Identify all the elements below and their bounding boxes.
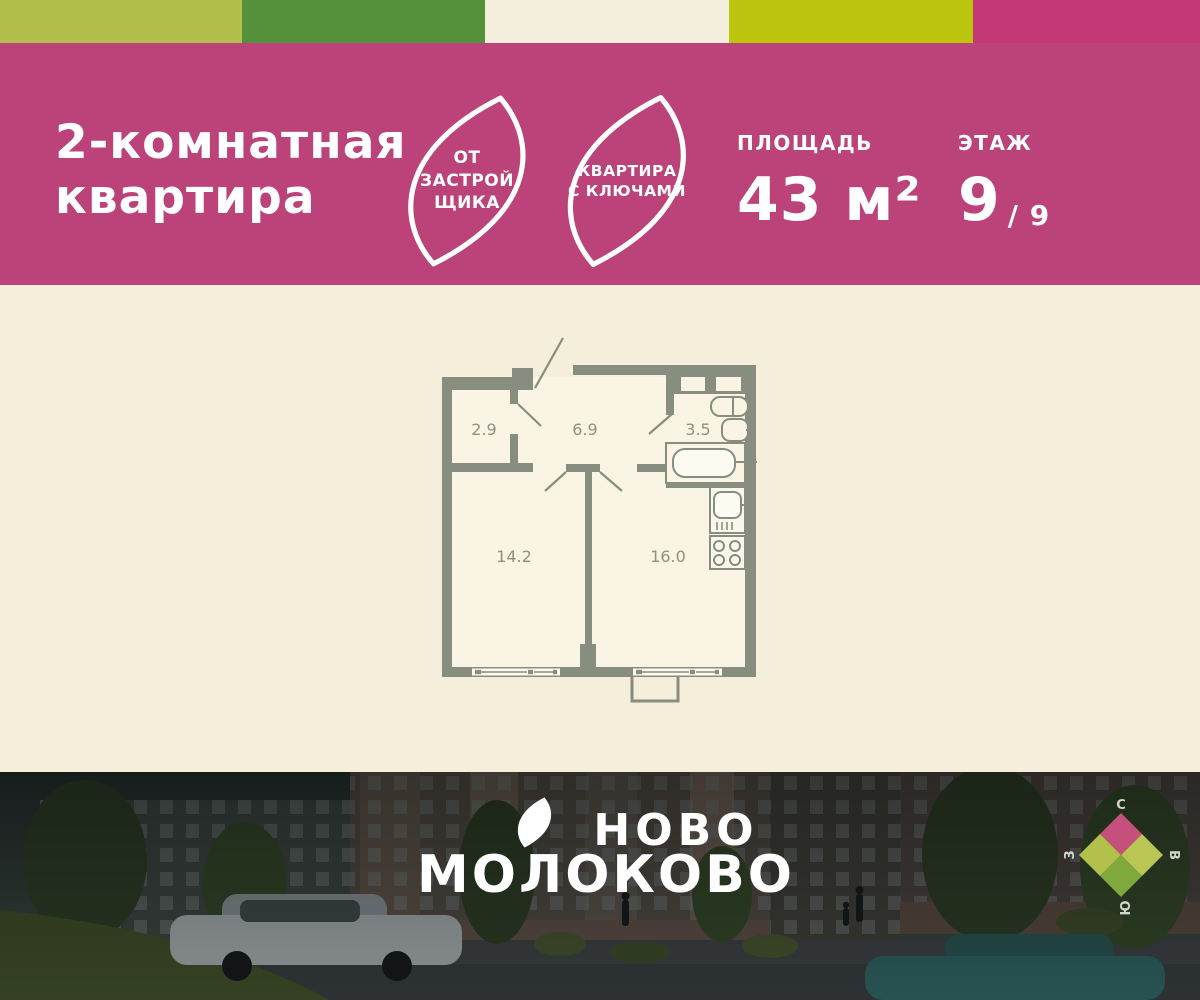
floor-label: ЭТАЖ [958, 131, 1050, 155]
badge-text: КВАРТИРА С КЛЮЧАМИ [545, 93, 709, 269]
strip-block-3 [485, 0, 729, 43]
floorplan-section: 2.9 6.9 3.5 14.2 16.0 [0, 285, 1200, 772]
title-line-1: 2-комнатная [55, 115, 407, 170]
balcony-outline [632, 677, 678, 701]
area-value: 43 м² [737, 165, 922, 235]
toilet-icon [711, 397, 748, 416]
stat-floor: ЭТАЖ 9 / 9 [958, 131, 1050, 235]
apartment-poster: { "top_strip": { "colors": ["#b2bf4a", "… [0, 0, 1200, 1000]
window-right [633, 669, 722, 676]
top-color-strip [0, 0, 1200, 43]
room-partition [585, 472, 592, 644]
brand-line-2: МОЛОКОВО [417, 845, 795, 905]
wall-left [442, 377, 452, 677]
title-line-2: квартира [55, 170, 407, 225]
entry-pier [512, 368, 533, 390]
compass-south-label: Ю [1119, 900, 1134, 915]
compass-west-label: З [1063, 850, 1078, 859]
strip-block-5 [973, 0, 1200, 43]
room-area-hallway: 6.9 [572, 420, 597, 439]
compass-east-label: В [1166, 850, 1181, 860]
wall-top-left [442, 377, 517, 390]
residential-scene: НОВО МОЛОКОВО С В Ю З [0, 772, 1200, 1000]
badge-with-keys: КВАРТИРА С КЛЮЧАМИ [545, 93, 709, 269]
strip-block-1 [0, 0, 242, 43]
badge-from-developer: ОТ ЗАСТРОЙ ЩИКА [391, 93, 543, 269]
strip-block-2 [242, 0, 485, 43]
window-left [472, 669, 560, 676]
stat-area: ПЛОЩАДЬ 43 м² [737, 131, 922, 235]
floor-value: 9 [958, 165, 1001, 235]
room-area-bathroom: 3.5 [685, 420, 710, 439]
floorplan-drawing: 2.9 6.9 3.5 14.2 16.0 [420, 330, 770, 720]
header-band: 2-комнатная квартира ОТ ЗАСТРОЙ ЩИКА КВА… [0, 43, 1200, 285]
badges: ОТ ЗАСТРОЙ ЩИКА КВАРТИРА С КЛЮЧАМИ [391, 93, 709, 269]
area-label: ПЛОЩАДЬ [737, 131, 922, 155]
compass-north-label: С [1116, 798, 1126, 813]
room-area-living: 14.2 [496, 547, 532, 566]
strip-block-4 [729, 0, 973, 43]
room-area-storage: 2.9 [471, 420, 496, 439]
footer-photo: НОВО МОЛОКОВО С В Ю З [0, 772, 1200, 1000]
wall-top-right [573, 365, 745, 375]
room-area-kitchen: 16.0 [650, 547, 686, 566]
page-title: 2-комнатная квартира [55, 115, 407, 226]
badge-text: ОТ ЗАСТРОЙ ЩИКА [391, 93, 543, 269]
floor-total: / 9 [1008, 199, 1050, 232]
bath-sink-icon [722, 419, 748, 441]
